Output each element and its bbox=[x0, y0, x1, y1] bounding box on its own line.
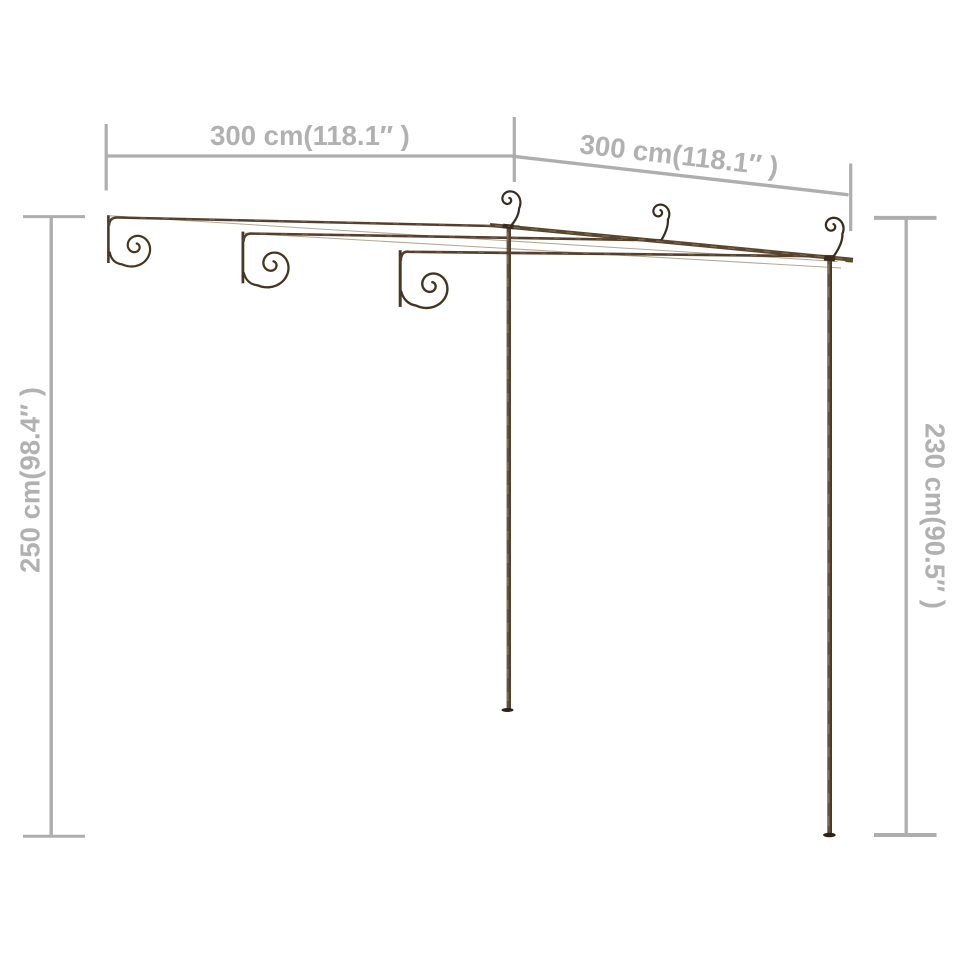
svg-text:230 cm(90.5″ ): 230 cm(90.5″ ) bbox=[920, 423, 951, 609]
svg-text:300 cm(118.1″ ): 300 cm(118.1″ ) bbox=[210, 120, 410, 151]
svg-text:250 cm(98.4″ ): 250 cm(98.4″ ) bbox=[15, 387, 46, 573]
